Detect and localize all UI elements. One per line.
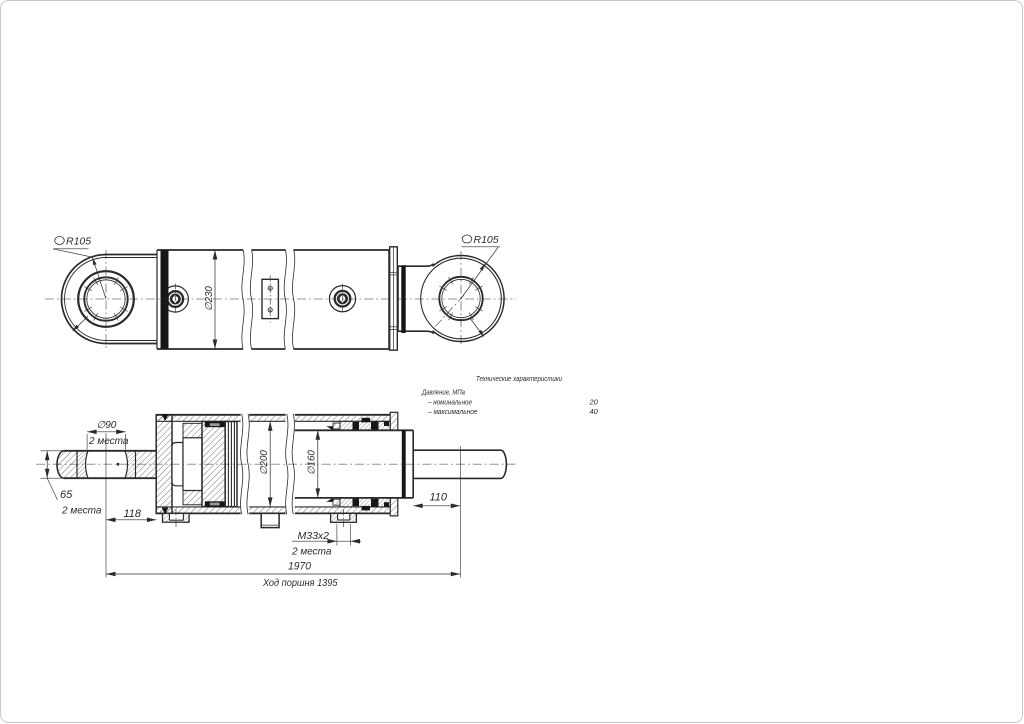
svg-text:∅230: ∅230 bbox=[204, 286, 215, 311]
svg-text:2 места: 2 места bbox=[291, 547, 332, 558]
svg-text:R105: R105 bbox=[474, 234, 499, 246]
svg-text:M33x2: M33x2 bbox=[298, 530, 330, 542]
svg-text:20: 20 bbox=[589, 398, 599, 407]
svg-text:Давление, МПа: Давление, МПа bbox=[421, 387, 465, 396]
svg-text:2 места: 2 места bbox=[88, 436, 129, 447]
svg-text:∅90: ∅90 bbox=[97, 420, 117, 431]
svg-text:– максимальное: – максимальное bbox=[427, 407, 477, 416]
svg-text:R105: R105 bbox=[66, 236, 91, 248]
svg-text:∅200: ∅200 bbox=[259, 450, 270, 475]
svg-text:40: 40 bbox=[590, 407, 599, 416]
svg-text:Технические характеристики: Технические характеристики bbox=[476, 374, 562, 383]
svg-text:110: 110 bbox=[430, 492, 448, 504]
svg-text:1970: 1970 bbox=[288, 561, 312, 573]
svg-text:∅160: ∅160 bbox=[306, 450, 317, 475]
svg-text:Ход поршня 1395: Ход поршня 1395 bbox=[262, 577, 338, 589]
svg-text:65: 65 bbox=[60, 489, 73, 501]
svg-text:118: 118 bbox=[124, 508, 142, 520]
svg-text:2 места: 2 места bbox=[61, 505, 102, 516]
svg-text:– номинальное: – номинальное bbox=[427, 398, 472, 407]
